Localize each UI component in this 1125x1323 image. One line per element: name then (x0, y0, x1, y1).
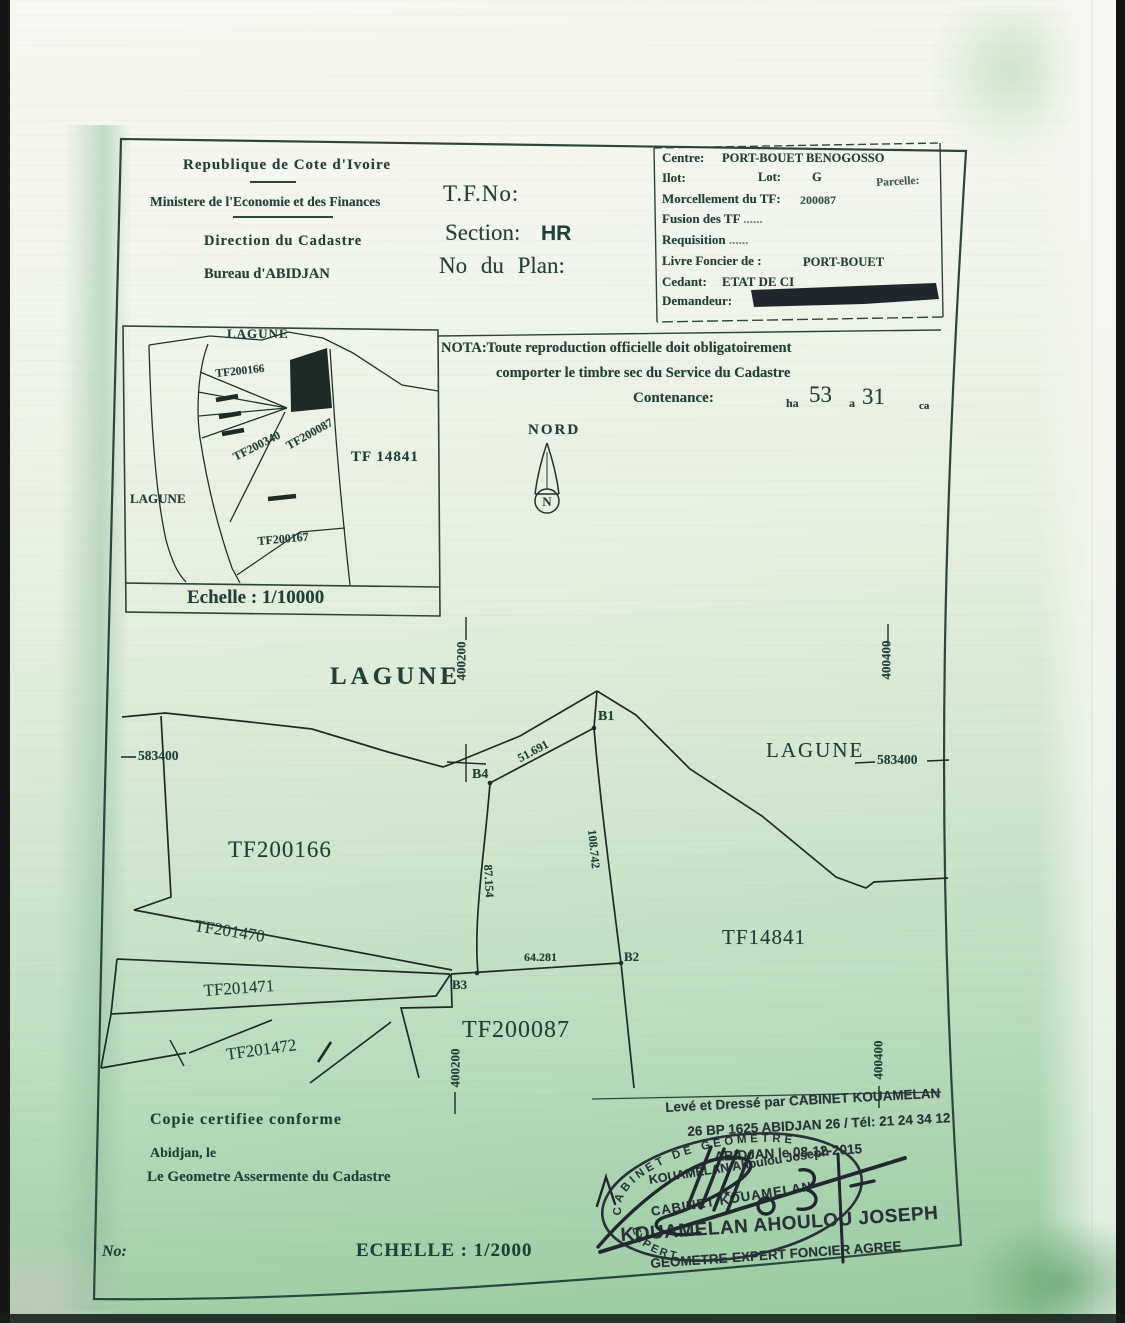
redaction-bar (751, 283, 939, 307)
scanned-cadastral-document: N (0, 0, 1125, 1323)
ink-overlay: CABINET DE GEOMETRE EXPERT (0, 0, 1125, 1323)
